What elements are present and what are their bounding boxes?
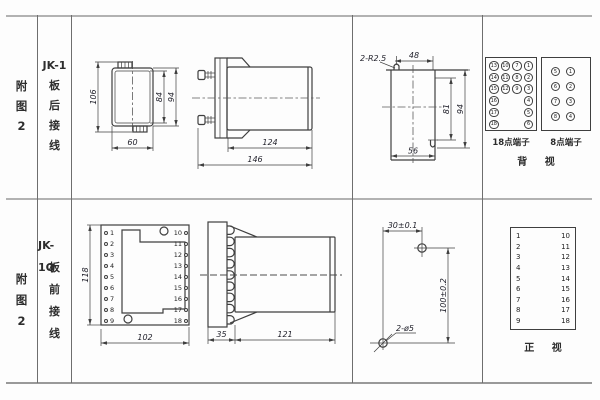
model-char: 接	[49, 301, 60, 323]
terminal-row-2-11: 211	[516, 242, 570, 253]
terminal-4: 4	[104, 261, 114, 272]
fig-char: 图	[16, 96, 28, 116]
dim-102: 102	[137, 333, 152, 342]
fig-char: 图	[16, 290, 28, 311]
fig-char: 附	[16, 76, 28, 96]
dim-100: 100±0.2	[439, 278, 448, 313]
terminal-18: 18	[168, 315, 188, 326]
model-name-jk1q: JK-1Q	[38, 235, 71, 257]
jk1q-drilling-plan-drawing: 30±0.1 100±0.2 2-ø5	[358, 215, 480, 365]
terminal-2: 2	[104, 239, 114, 250]
terminal-4: 4	[563, 109, 578, 124]
front-view-terminals-right: 101112131415161718	[168, 228, 188, 326]
terminal-12: 12	[168, 250, 188, 261]
terminal-16: 16	[168, 293, 188, 304]
terminal-10: 10	[168, 228, 188, 239]
terminal-11: 11	[168, 239, 188, 250]
label-2-r2.5: 2-R2.5	[360, 54, 386, 63]
dim-56: 56	[408, 147, 418, 156]
terminal-slot-empty	[511, 107, 523, 119]
terminal-row-9-18: 918	[516, 316, 570, 327]
terminal-row-8-17: 817	[516, 305, 570, 316]
terminal-7: 7	[104, 293, 114, 304]
fig-char: 附	[16, 269, 28, 290]
jk1q-side-view-drawing: 35 121	[200, 215, 345, 350]
fig-label-row2: 附 图 2	[6, 269, 37, 332]
model-label-row1: JK-1 板 后 接 线	[38, 56, 71, 156]
terminal-3: 3	[523, 83, 535, 95]
terminal-row-5-14: 514	[516, 273, 570, 284]
label-8-point: 8点端子	[536, 136, 596, 148]
grid-line-v2	[71, 15, 72, 383]
terminal-1: 1	[523, 60, 535, 72]
model-char: 线	[49, 136, 60, 156]
terminal-8: 8	[548, 109, 563, 124]
terminal-3: 3	[104, 250, 114, 261]
grid-line-v3	[352, 15, 353, 383]
terminal-13: 13	[168, 261, 188, 272]
terminal-14: 14	[168, 272, 188, 283]
model-char: 板	[49, 257, 60, 279]
terminal-9: 9	[511, 83, 523, 95]
terminal-8: 8	[511, 72, 523, 84]
label-2-d5: 2-ø5	[396, 324, 414, 333]
grid-line-bottom	[6, 382, 592, 384]
terminal-13: 13	[488, 60, 500, 72]
label-front-view: 正 视	[510, 339, 576, 354]
terminal-10: 10	[500, 60, 512, 72]
terminal-15: 15	[168, 282, 188, 293]
fig-char: 2	[17, 311, 25, 332]
terminal-17: 17	[488, 107, 500, 119]
terminal-row-1-10: 110	[516, 231, 570, 242]
terminal-12: 12	[500, 83, 512, 95]
terminal-16: 16	[488, 95, 500, 107]
terminal-slot-empty	[511, 95, 523, 107]
terminal-row-7-16: 716	[516, 294, 570, 305]
terminal-2: 2	[523, 72, 535, 84]
dim-106: 106	[89, 89, 98, 104]
terminal-slot-empty	[500, 95, 512, 107]
fig-char: 2	[17, 116, 25, 136]
terminal-3: 3	[563, 94, 578, 109]
grid-line-v4	[482, 15, 483, 383]
front-view-terminals-left: 123456789	[104, 228, 114, 326]
model-char: 板	[49, 76, 60, 96]
terminal-7: 7	[548, 94, 563, 109]
terminal-slot-empty	[511, 118, 523, 130]
label-back-view: 背 视	[503, 153, 569, 168]
terminal-4: 4	[523, 95, 535, 107]
terminal-17: 17	[168, 304, 188, 315]
terminal-6: 6	[548, 79, 563, 94]
dim-81: 81	[442, 104, 451, 114]
terminal-18: 18	[488, 118, 500, 130]
terminal-row-3-12: 312	[516, 252, 570, 263]
dim-35: 35	[216, 330, 226, 339]
grid-line-top	[6, 15, 592, 17]
terminal-15: 15	[488, 83, 500, 95]
fig-label-row1: 附 图 2	[6, 76, 37, 136]
dim-124: 124	[262, 138, 277, 147]
dim-48: 48	[409, 51, 419, 60]
model-label-row2: JK-1Q 板 前 接 线	[38, 235, 71, 345]
model-char: 后	[49, 96, 60, 116]
terminal-1: 1	[563, 64, 578, 79]
terminal-slot-empty	[500, 118, 512, 130]
dim-118: 118	[81, 267, 90, 282]
dim-84: 84	[155, 92, 164, 102]
mounting-hole-top	[160, 227, 168, 235]
terminal-9: 9	[104, 315, 114, 326]
model-char: 前	[49, 279, 60, 301]
dim-30: 30±0.1	[388, 221, 418, 230]
model-name-jk1: JK-1	[43, 56, 67, 76]
dim-94b: 94	[456, 104, 465, 114]
jk1-panel-cutout-drawing: 2-R2.5 48 81 94 56	[358, 45, 480, 173]
terminal-5: 5	[104, 272, 114, 283]
terminal-6: 6	[523, 118, 535, 130]
terminal-7: 7	[511, 60, 523, 72]
terminal-11: 11	[500, 72, 512, 84]
terminal-bolt-bottom	[198, 116, 215, 125]
terminal-block-8: 51627384	[541, 57, 591, 131]
terminal-row-6-15: 615	[516, 284, 570, 295]
terminal-8: 8	[104, 304, 114, 315]
terminal-table-front: 110211312413514615716817918	[510, 227, 576, 330]
terminal-bolt-top	[198, 71, 215, 80]
mounting-slot-bottom	[431, 140, 436, 147]
jk1-side-view-drawing: 124 146	[192, 40, 332, 175]
drawing-sheet: 附 图 2 JK-1 板 后 接 线 106 84 94	[0, 0, 600, 400]
terminal-2: 2	[563, 79, 578, 94]
jk1-rear-view-drawing: 106 84 94 60	[85, 48, 197, 160]
model-char: 线	[49, 323, 60, 345]
terminal-row-4-13: 413	[516, 263, 570, 274]
mounting-hole-bottom	[124, 315, 132, 323]
label-18-point: 18点端子	[478, 136, 544, 148]
dim-146: 146	[247, 155, 262, 164]
terminal-block-18: 131071141182151293164175186	[485, 57, 537, 131]
terminal-5: 5	[523, 107, 535, 119]
terminal-1: 1	[104, 228, 114, 239]
terminal-5: 5	[548, 64, 563, 79]
terminal-slot-empty	[500, 107, 512, 119]
dim-60: 60	[127, 138, 137, 147]
terminal-table-rows: 110211312413514615716817918	[511, 228, 575, 329]
dim-94: 94	[167, 92, 176, 102]
terminal-6: 6	[104, 282, 114, 293]
terminal-14: 14	[488, 72, 500, 84]
model-char: 接	[49, 116, 60, 136]
dim-121: 121	[277, 330, 292, 339]
grid-line-middle	[6, 198, 592, 200]
